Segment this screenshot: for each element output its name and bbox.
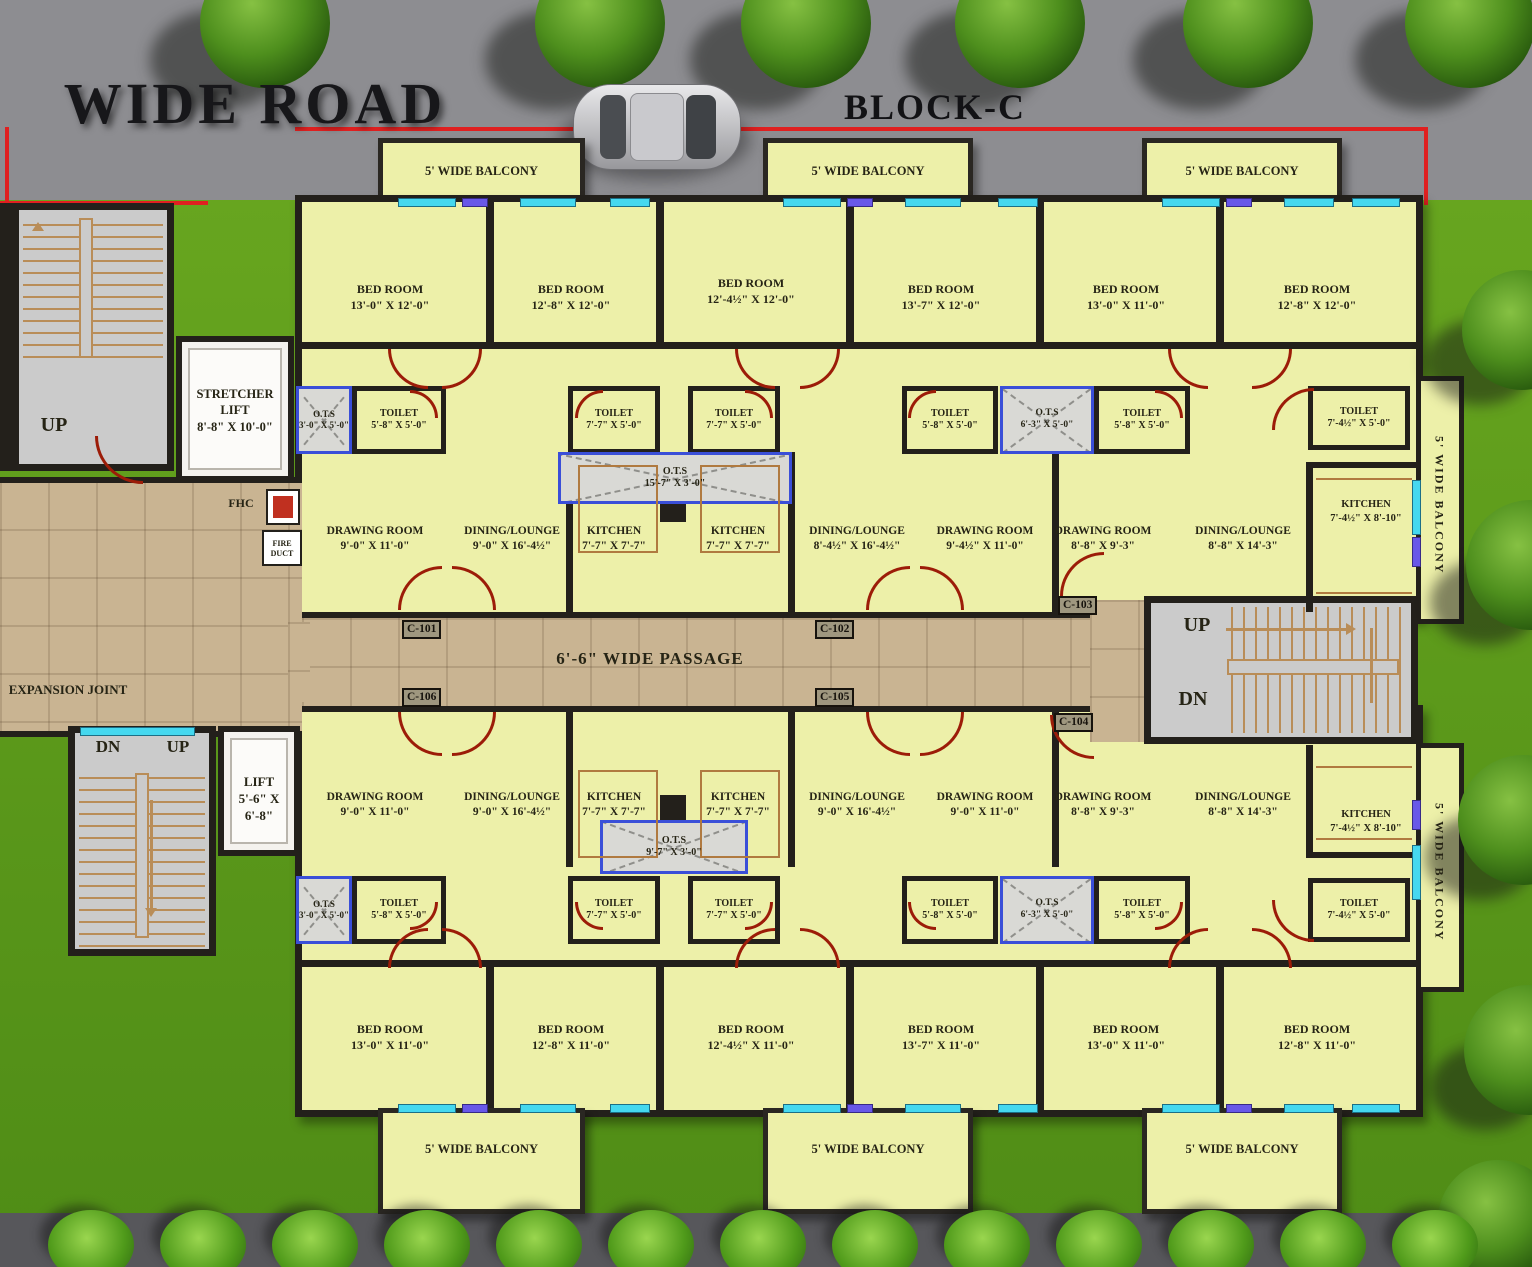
toilet-dim: 7'-7" X 5'-0" bbox=[706, 420, 762, 431]
window bbox=[1352, 1104, 1400, 1113]
window bbox=[1352, 198, 1400, 207]
window bbox=[462, 1104, 488, 1113]
window bbox=[1412, 537, 1421, 567]
ots-bottom-mid: O.T.S6'-3" X 5'-0" bbox=[1000, 876, 1094, 944]
stair-up-label: UP bbox=[24, 412, 84, 438]
wall bbox=[302, 342, 1416, 349]
room-label-bedroom: BED ROOM13'-0" X 11'-0" bbox=[1051, 1022, 1201, 1053]
stair-up-label: UP bbox=[156, 736, 200, 758]
wall bbox=[656, 202, 664, 346]
ots-top-mid: O.T.S6'-3" X 5'-0" bbox=[1000, 386, 1094, 454]
balcony-label-vertical: 5' WIDE BALCONY bbox=[1431, 762, 1447, 982]
toilet: TOILET7'-7" X 5'-0" bbox=[568, 386, 660, 454]
toilet-label: TOILET bbox=[1340, 898, 1378, 909]
balcony-label: 5' WIDE BALCONY bbox=[383, 1141, 580, 1157]
window bbox=[1412, 800, 1421, 830]
window bbox=[520, 198, 576, 207]
ots-label: O.T.S bbox=[313, 409, 335, 419]
kitchen-counter bbox=[1316, 766, 1412, 768]
balcony-bottom-1: 5' WIDE BALCONY bbox=[378, 1108, 585, 1214]
unit-tag-c102: C-102 bbox=[815, 620, 854, 639]
room-label-kitchen: KITCHEN7'-7" X 7'-7" bbox=[566, 524, 662, 554]
balcony-label: 5' WIDE BALCONY bbox=[1147, 1141, 1337, 1157]
balcony-label-vertical: 5' WIDE BALCONY bbox=[1431, 395, 1447, 615]
kitchen-counter bbox=[1316, 592, 1412, 594]
stretcher-lift-label: STRETCHER LIFT bbox=[196, 387, 273, 417]
room-label-kitchen: KITCHEN7'-7" X 7'-7" bbox=[690, 790, 786, 820]
room-label-bedroom: BED ROOM13'-7" X 11'-0" bbox=[866, 1022, 1016, 1053]
fhc-box bbox=[266, 489, 300, 525]
window bbox=[998, 1104, 1038, 1113]
balcony-label: 5' WIDE BALCONY bbox=[768, 1141, 968, 1157]
window bbox=[998, 198, 1038, 207]
car-windshield bbox=[686, 95, 716, 159]
ots-top-left: O.T.S3'-0" X 5'-0" bbox=[296, 386, 352, 454]
road-title: WIDE ROAD bbox=[20, 66, 490, 141]
unit-tag-c103: C-103 bbox=[1058, 596, 1097, 615]
window bbox=[1412, 480, 1421, 535]
room-label-bedroom: BED ROOM13'-0" X 11'-0" bbox=[1051, 282, 1201, 313]
kitchen-counter bbox=[1316, 838, 1412, 840]
lift-dim: 5'-6" X 6'-8" bbox=[224, 791, 294, 825]
window bbox=[1412, 845, 1421, 900]
stretcher-lift-dim: 8'-8" X 10'-0" bbox=[182, 419, 288, 435]
passage-lobby-connector bbox=[288, 622, 310, 702]
window bbox=[783, 1104, 841, 1113]
toilet-dim: 7'-4½" X 5'-0" bbox=[1327, 418, 1390, 429]
fire-duct-box: FIRE DUCT bbox=[262, 530, 302, 566]
toilet: TOILET7'-7" X 5'-0" bbox=[688, 386, 780, 454]
car-icon bbox=[573, 84, 741, 170]
stair-up-label: UP bbox=[1172, 612, 1222, 638]
window bbox=[520, 1104, 576, 1113]
building-top-block bbox=[295, 195, 1423, 619]
wall bbox=[1036, 966, 1044, 1110]
ots-label: O.T.S bbox=[662, 835, 686, 846]
unit-tag-c104: C-104 bbox=[1054, 713, 1093, 732]
wall bbox=[846, 202, 854, 346]
boundary-line-left-vertical bbox=[5, 127, 9, 205]
toilet-dim: 5'-8" X 5'-0" bbox=[922, 420, 978, 431]
stairs-bottom-left bbox=[68, 726, 216, 956]
window bbox=[1226, 1104, 1252, 1113]
ots-dim: 15'-7" X 3'-0" bbox=[645, 478, 706, 489]
window bbox=[610, 198, 650, 207]
ots-dim: 6'-3" X 5'-0" bbox=[1021, 910, 1074, 920]
room-label-kitchen: KITCHEN7'-4½" X 8'-10" bbox=[1318, 498, 1414, 525]
stair-arrow-line bbox=[1370, 628, 1373, 703]
ots-dim: 3'-0" X 5'-0" bbox=[299, 910, 349, 920]
window bbox=[1284, 1104, 1334, 1113]
room-label-drawing: DRAWING ROOM9'-0" X 11'-0" bbox=[310, 790, 440, 820]
stair-landing-floor bbox=[1090, 600, 1152, 742]
balcony-bottom-3: 5' WIDE BALCONY bbox=[1142, 1108, 1342, 1214]
room-label-bedroom: BED ROOM12'-4½" X 11'-0" bbox=[676, 1022, 826, 1053]
room-label-bedroom: BED ROOM12'-8" X 12'-0" bbox=[1242, 282, 1392, 313]
balcony-label: 5' WIDE BALCONY bbox=[1147, 163, 1337, 179]
wall bbox=[1216, 202, 1224, 346]
room-label-drawing: DRAWING ROOM9'-0" X 11'-0" bbox=[920, 790, 1050, 820]
room-label-bedroom: BED ROOM13'-7" X 12'-0" bbox=[866, 282, 1016, 313]
floor-plan-canvas: WIDE ROAD BLOCK-C 5' WIDE BALCONY 5' WID… bbox=[0, 0, 1532, 1267]
stretcher-lift: STRETCHER LIFT 8'-8" X 10'-0" bbox=[176, 336, 294, 482]
window bbox=[610, 1104, 650, 1113]
unit-tag-c106: C-106 bbox=[402, 688, 441, 707]
wall bbox=[486, 202, 494, 346]
toilet-dim: 5'-8" X 5'-0" bbox=[371, 420, 427, 431]
passage-label: 6'-6" WIDE PASSAGE bbox=[520, 648, 780, 670]
room-label-bedroom: BED ROOM12'-8" X 11'-0" bbox=[496, 1022, 646, 1053]
toilet-dim: 5'-8" X 5'-0" bbox=[1114, 420, 1170, 431]
lift-label: LIFT bbox=[244, 774, 274, 789]
stair-stringer bbox=[1227, 659, 1399, 675]
room-label-bedroom: BED ROOM12'-8" X 12'-0" bbox=[496, 282, 646, 313]
window bbox=[847, 198, 873, 207]
fhc-label: FHC bbox=[220, 496, 262, 512]
wall bbox=[1216, 966, 1224, 1110]
wall bbox=[1312, 852, 1416, 858]
toilet-label: TOILET bbox=[931, 898, 969, 909]
room-label-dining: DINING/LOUNGE8'-4½" X 16'-4½" bbox=[792, 524, 922, 554]
stair-treads bbox=[23, 214, 163, 364]
ots-dim: 6'-3" X 5'-0" bbox=[1021, 420, 1074, 430]
room-label-kitchen: KITCHEN7'-4½" X 8'-10" bbox=[1318, 808, 1414, 835]
toilet: TOILET7'-4½" X 5'-0" bbox=[1308, 386, 1410, 450]
ots-label: O.T.S bbox=[1035, 898, 1058, 908]
room-label-dining: DINING/LOUNGE9'-0" X 16'-4½" bbox=[447, 790, 577, 820]
fire-duct-label: FIRE DUCT bbox=[264, 539, 300, 560]
room-label-bedroom: BED ROOM12'-8" X 11'-0" bbox=[1242, 1022, 1392, 1053]
ots-bottom-left: O.T.S3'-0" X 5'-0" bbox=[296, 876, 352, 944]
window bbox=[783, 198, 841, 207]
car-roof bbox=[630, 93, 684, 161]
balcony-top-1: 5' WIDE BALCONY bbox=[378, 138, 585, 202]
window bbox=[1162, 198, 1220, 207]
window bbox=[905, 1104, 961, 1113]
ots-label: O.T.S bbox=[313, 899, 335, 909]
room-label-drawing: DRAWING ROOM9'-4½" X 11'-0" bbox=[920, 524, 1050, 554]
unit-tag-c105: C-105 bbox=[815, 688, 854, 707]
toilet: TOILET5'-8" X 5'-0" bbox=[1094, 386, 1190, 454]
window bbox=[1162, 1104, 1220, 1113]
stair-arrow-right bbox=[1346, 623, 1356, 635]
room-label-dining: DINING/LOUNGE9'-0" X 16'-4½" bbox=[792, 790, 922, 820]
stair-arrow-up bbox=[32, 222, 44, 231]
boundary-line-right bbox=[1424, 127, 1428, 205]
ots-dim: 3'-0" X 5'-0" bbox=[299, 420, 349, 430]
toilet-dim: 7'-7" X 5'-0" bbox=[586, 420, 642, 431]
balcony-label: 5' WIDE BALCONY bbox=[768, 163, 968, 179]
room-label-kitchen: KITCHEN7'-7" X 7'-7" bbox=[690, 524, 786, 554]
toilet-label: TOILET bbox=[931, 408, 969, 419]
window bbox=[905, 198, 961, 207]
balcony-label: 5' WIDE BALCONY bbox=[383, 163, 580, 179]
stair-arrow-down bbox=[145, 908, 157, 917]
room-label-bedroom: BED ROOM13'-0" X 12'-0" bbox=[315, 282, 465, 313]
expansion-joint-label: EXPANSION JOINT bbox=[8, 682, 128, 699]
unit-tag-c101: C-101 bbox=[402, 620, 441, 639]
stair-arrow-line bbox=[1226, 628, 1346, 631]
window bbox=[80, 727, 195, 736]
ots-label: O.T.S bbox=[1035, 408, 1058, 418]
balcony-top-2: 5' WIDE BALCONY bbox=[763, 138, 973, 202]
balcony-top-3: 5' WIDE BALCONY bbox=[1142, 138, 1342, 202]
window bbox=[398, 1104, 456, 1113]
wall bbox=[846, 966, 854, 1110]
wall bbox=[1036, 202, 1044, 346]
window bbox=[398, 198, 456, 207]
wall bbox=[656, 966, 664, 1110]
room-label-bedroom: BED ROOM13'-0" X 11'-0" bbox=[315, 1022, 465, 1053]
wall bbox=[1312, 462, 1416, 468]
window bbox=[847, 1104, 873, 1113]
balcony-bottom-2: 5' WIDE BALCONY bbox=[763, 1108, 973, 1214]
room-label-drawing: DRAWING ROOM8'-8" X 9'-3" bbox=[1040, 790, 1166, 820]
room-label-drawing: DRAWING ROOM9'-0" X 11'-0" bbox=[310, 524, 440, 554]
stair-dn-label: DN bbox=[86, 736, 130, 758]
toilet-label: TOILET bbox=[1340, 406, 1378, 417]
stair-arrow-line bbox=[150, 800, 153, 910]
fire-hose-icon bbox=[273, 496, 293, 518]
window bbox=[462, 198, 488, 207]
room-label-dining: DINING/LOUNGE8'-8" X 14'-3" bbox=[1178, 524, 1308, 554]
wall bbox=[486, 966, 494, 1110]
stair-stringer bbox=[79, 218, 93, 358]
kitchen-counter bbox=[1316, 478, 1412, 480]
ots-label: O.T.S bbox=[663, 466, 687, 477]
car-rear-glass bbox=[600, 95, 626, 159]
toilet: TOILET7'-4½" X 5'-0" bbox=[1308, 878, 1410, 942]
room-label-bedroom: BED ROOM12'-4½" X 12'-0" bbox=[676, 276, 826, 307]
room-label-dining: DINING/LOUNGE8'-8" X 14'-3" bbox=[1178, 790, 1308, 820]
room-label-drawing: DRAWING ROOM8'-8" X 9'-3" bbox=[1040, 524, 1166, 554]
room-label-kitchen: KITCHEN7'-7" X 7'-7" bbox=[566, 790, 662, 820]
stair-dn-label: DN bbox=[1168, 686, 1218, 712]
window bbox=[1284, 198, 1334, 207]
ots-dim: 9'-7" X 3'-0" bbox=[646, 847, 702, 858]
toilet: TOILET5'-8" X 5'-0" bbox=[352, 386, 446, 454]
block-title: BLOCK-C bbox=[800, 84, 1070, 131]
building-bottom-block bbox=[295, 705, 1423, 1117]
room-label-dining: DINING/LOUNGE9'-0" X 16'-4½" bbox=[447, 524, 577, 554]
toilet-dim: 7'-4½" X 5'-0" bbox=[1327, 910, 1390, 921]
window bbox=[1226, 198, 1252, 207]
lift: LIFT 5'-6" X 6'-8" bbox=[218, 726, 300, 856]
